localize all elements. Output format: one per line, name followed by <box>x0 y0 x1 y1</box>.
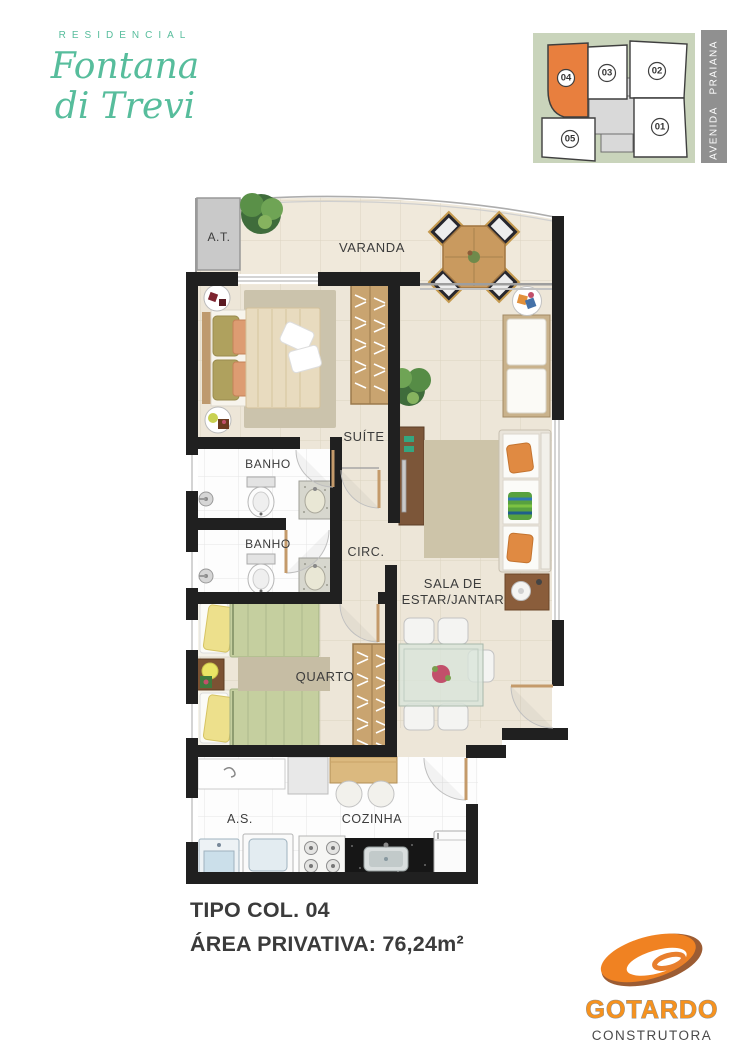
room-label-banho-social: BANHO <box>245 537 291 551</box>
unit-01-label: 01 <box>655 122 666 133</box>
stove <box>299 836 345 878</box>
suite-breakfast-tray <box>205 407 231 433</box>
floor-plan: A.T. VARANDA SUÍTE BANHO BANHO CIRC. QUA… <box>178 183 578 895</box>
suite-wardrobe <box>351 284 390 404</box>
builder-tagline: CONSTRUTORA <box>592 1028 713 1043</box>
tv-rack <box>399 427 424 525</box>
laundry-counter <box>198 759 285 789</box>
unit-05-label: 05 <box>565 134 576 145</box>
water-heater-box <box>288 757 328 794</box>
site-key-map: 04 03 02 05 01 AVENIDA PRAIANA <box>528 22 738 172</box>
brand-kicker: RESIDENCIAL <box>20 30 230 41</box>
unit-02-label: 02 <box>652 66 663 77</box>
quarto-bed-2 <box>197 689 319 747</box>
suite-nightstand <box>204 285 230 311</box>
washing-machine <box>243 834 293 878</box>
quarto-bed-1 <box>197 599 319 657</box>
fridge <box>434 831 467 878</box>
private-area-label: ÁREA PRIVATIVA: 76,24m² <box>190 927 464 961</box>
street-label: AVENIDA PRAIANA <box>709 40 720 160</box>
sofa <box>499 430 551 572</box>
builder-name: GOTARDO <box>586 996 719 1024</box>
builder-logo: GOTARDO CONSTRUTORA <box>572 926 732 1058</box>
brand-name-line2: di Trevi <box>20 87 230 127</box>
balcony-bench <box>503 315 550 417</box>
quarto-nightstand <box>197 659 224 690</box>
brand-logo: RESIDENCIAL Fontana di Trevi <box>20 30 230 128</box>
room-label-as: A.S. <box>227 812 253 826</box>
striped-pillow <box>508 492 532 520</box>
unit-type-label: TIPO COL. 04 <box>190 893 464 927</box>
suite-double-bed <box>202 308 322 408</box>
room-label-at: A.T. <box>207 230 230 244</box>
room-label-sala-2: ESTAR/JANTAR <box>402 592 505 607</box>
unit-summary: TIPO COL. 04 ÁREA PRIVATIVA: 76,24m² <box>190 893 464 962</box>
unit-03-label: 03 <box>602 68 613 79</box>
decor-side-table <box>513 287 542 316</box>
unit-04-label: 04 <box>561 73 572 84</box>
builder-swoosh-icon <box>595 926 708 996</box>
living-rug <box>424 440 502 558</box>
room-label-circ: CIRC. <box>347 545 384 559</box>
room-label-quarto: QUARTO <box>296 669 355 684</box>
kitchen-sink <box>364 843 408 872</box>
sofa-side-table <box>505 574 549 610</box>
room-label-sala-1: SALA DE <box>424 576 482 591</box>
brand-name-line1: Fontana <box>20 47 230 87</box>
room-label-banho-suite: BANHO <box>245 457 291 471</box>
room-label-varanda: VARANDA <box>339 240 405 255</box>
room-label-suite: SUÍTE <box>343 429 384 444</box>
room-label-cozinha: COZINHA <box>342 812 403 826</box>
